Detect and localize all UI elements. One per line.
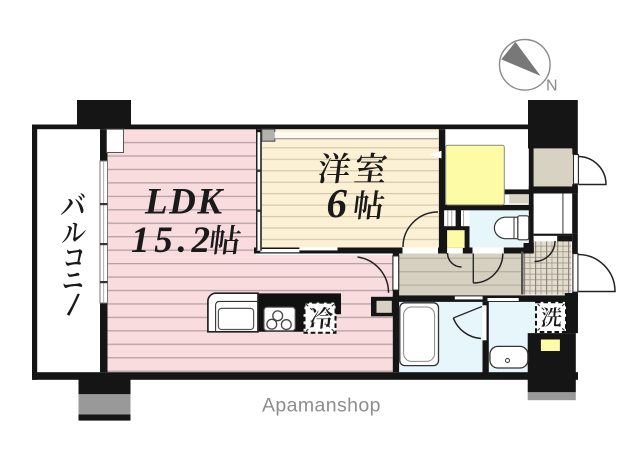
svg-text:N: N [546,78,558,95]
svg-text:6: 6 [327,180,348,226]
svg-text:LDK: LDK [144,182,224,223]
svg-text:15.2: 15.2 [131,220,210,261]
svg-text:Apamanshop: Apamanshop [262,395,381,417]
